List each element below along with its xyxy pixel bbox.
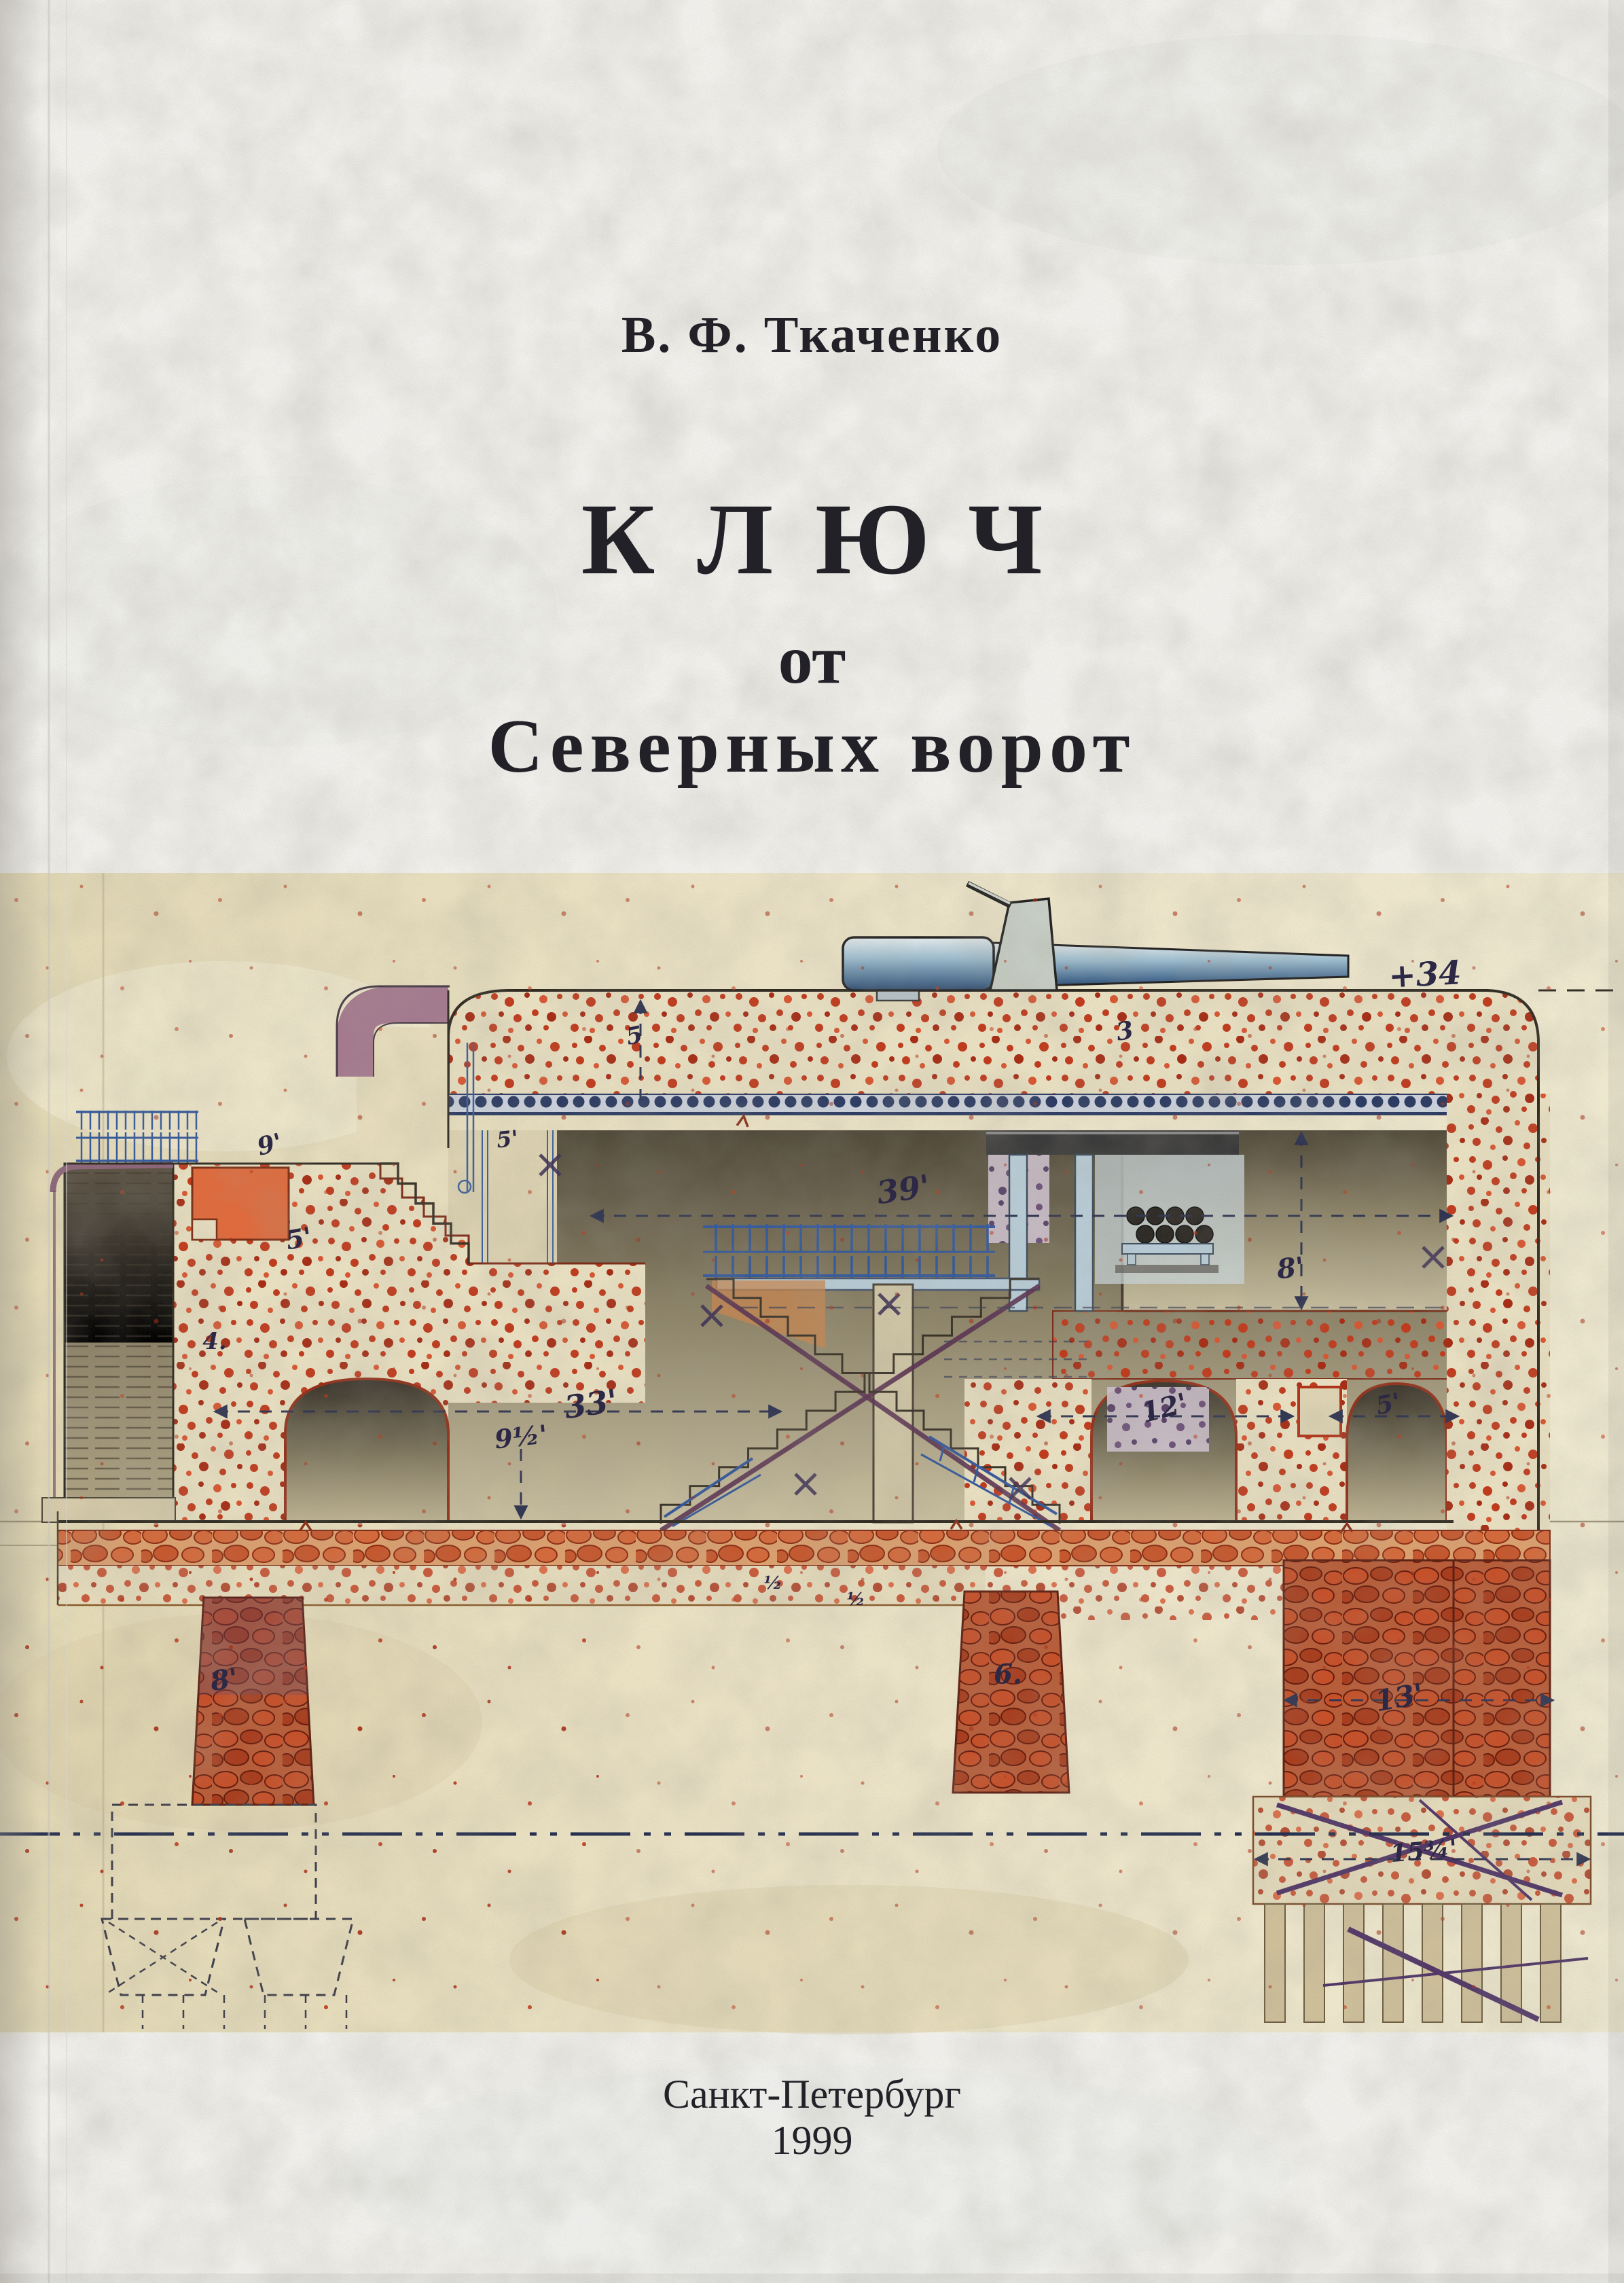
author-name: В. Ф. Ткаченко — [0, 307, 1624, 364]
book-cover: В. Ф. Ткаченко КЛЮЧ от Северных ворот Са… — [0, 0, 1624, 2283]
title-main: КЛЮЧ — [0, 484, 1624, 596]
imprint-city: Санкт-Петербург — [0, 2072, 1624, 2117]
imprint-year: 1999 — [0, 2118, 1624, 2163]
title-subline: Северных ворот — [0, 705, 1624, 789]
title-preposition: от — [0, 622, 1624, 698]
